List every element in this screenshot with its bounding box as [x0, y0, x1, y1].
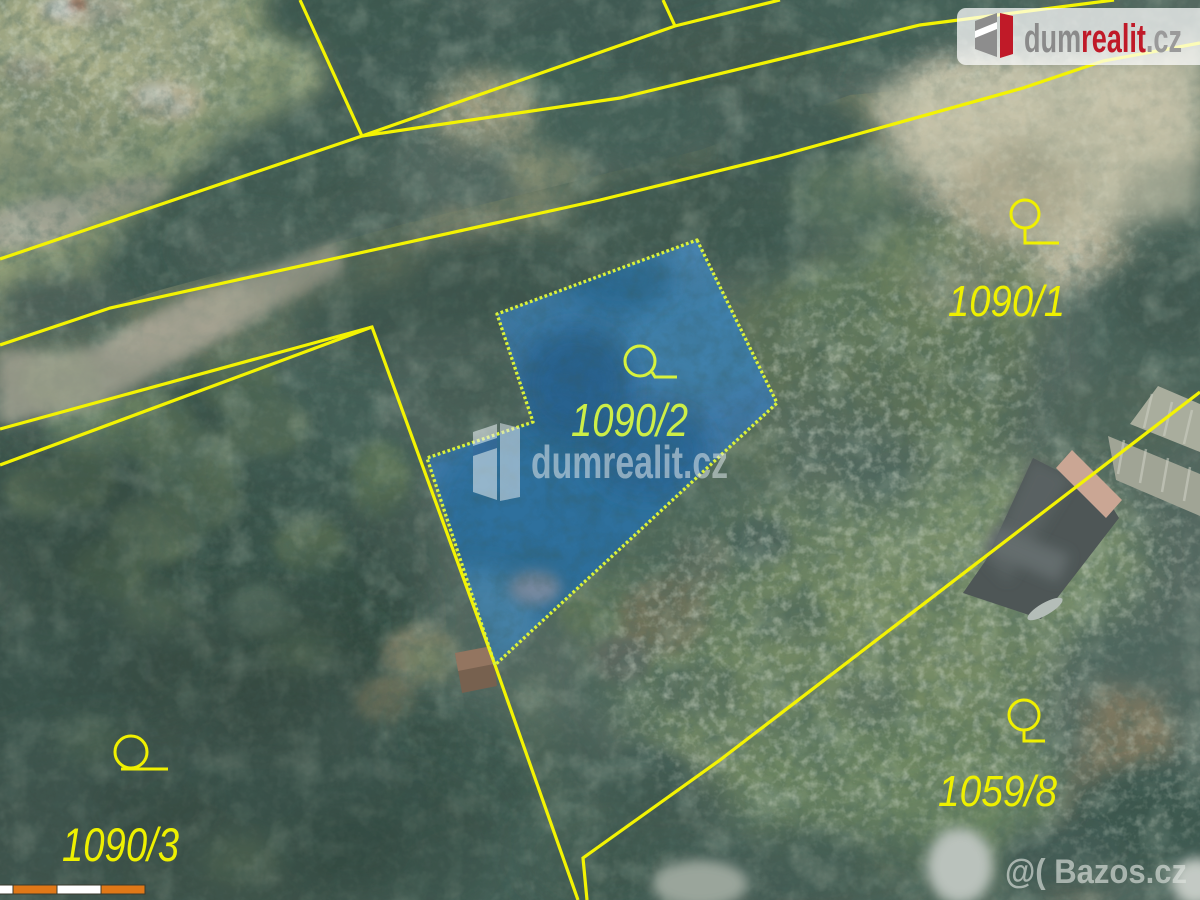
svg-text:@( Bazos.cz: @( Bazos.cz — [1005, 853, 1187, 891]
svg-text:1090/3: 1090/3 — [62, 818, 179, 871]
svg-text:1059/8: 1059/8 — [938, 767, 1057, 816]
svg-text:dumrealit.cz: dumrealit.cz — [1024, 17, 1182, 61]
svg-text:dumrealit.cz: dumrealit.cz — [531, 436, 728, 488]
svg-text:1090/1: 1090/1 — [948, 277, 1065, 326]
